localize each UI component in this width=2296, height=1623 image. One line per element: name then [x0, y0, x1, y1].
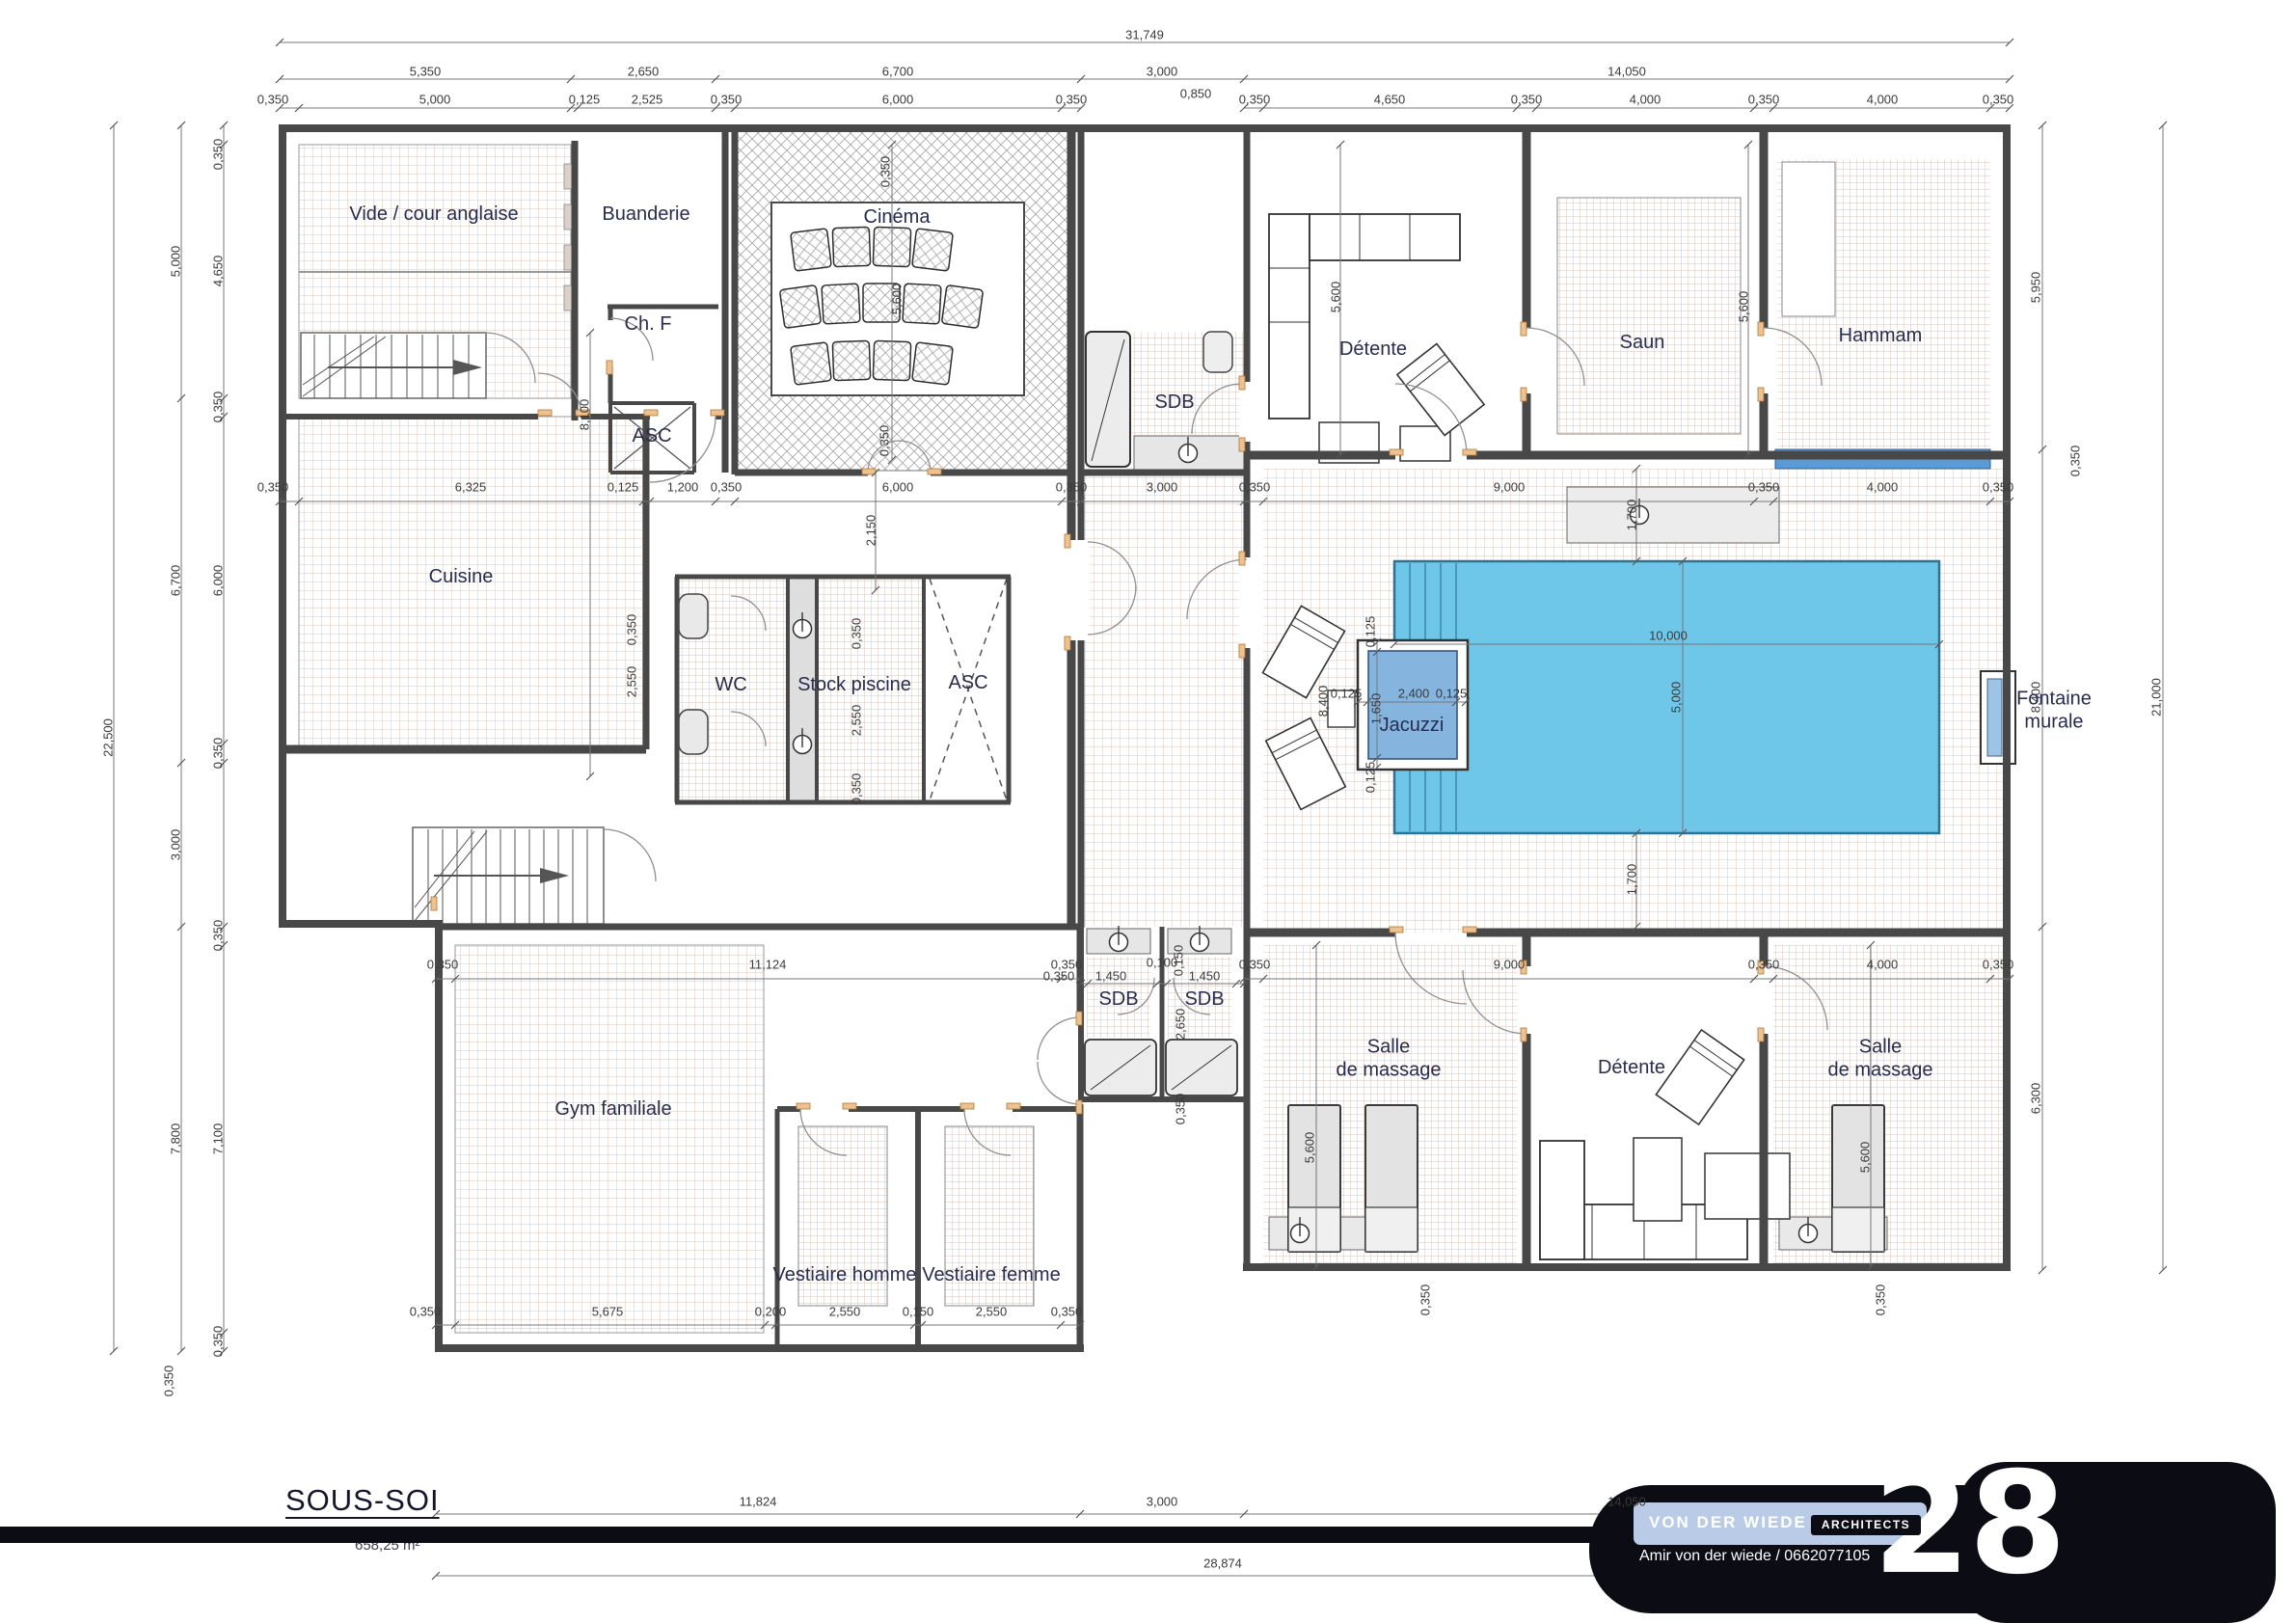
room-label-cuisine: Cuisine [429, 565, 494, 588]
dim-label: 2,150 [864, 515, 878, 547]
dim-label: 3,000 [1147, 480, 1178, 495]
dim-label: 4,000 [1867, 480, 1899, 495]
dim-label: 0,350 [1051, 1305, 1083, 1319]
dim-label: 3,000 [169, 829, 183, 861]
dim-label: 1,200 [667, 480, 699, 495]
dim-label: 0,350 [625, 614, 639, 646]
dim-label: 0,350 [1239, 958, 1271, 972]
dim-label: 0,350 [1983, 93, 2014, 107]
room-label-cinema: Cinéma [864, 205, 931, 229]
dim-label: 6,700 [882, 65, 914, 79]
dim-label: 5,675 [592, 1305, 624, 1319]
dim-label: 2,650 [1174, 1009, 1188, 1041]
dim-label: 0,350 [711, 93, 743, 107]
dim-label: 0,350 [1983, 958, 2014, 972]
dim-label: 0,350 [211, 392, 226, 423]
room-label-gym-familiale: Gym familiale [554, 1097, 671, 1121]
dim-label: 0,350 [410, 1305, 442, 1319]
room-label-vestiaire-femme: Vestiaire femme [922, 1263, 1060, 1286]
dim-label: 14,050 [1607, 65, 1646, 79]
dim-label: 0,350 [257, 93, 289, 107]
dim-label: 0,350 [850, 773, 864, 805]
room-label-sdb-left: SDB [1098, 987, 1138, 1011]
dim-label: 2,550 [850, 705, 864, 737]
dim-label: 5,350 [410, 65, 442, 79]
dim-label: 0,350 [2068, 446, 2083, 477]
dim-label: 6,300 [2029, 1083, 2043, 1115]
dim-label: 6,000 [211, 565, 226, 597]
dim-label: 2,525 [632, 93, 663, 107]
dim-label: 0,350 [1418, 1285, 1433, 1316]
dim-label: 1,700 [1625, 864, 1639, 896]
room-label-sdb-right: SDB [1184, 987, 1224, 1011]
dim-label: 0,350 [162, 1366, 176, 1397]
dim-label: 0,350 [1056, 93, 1088, 107]
dim-label: 0,350 [1239, 480, 1271, 495]
dim-label: 0,350 [1748, 480, 1780, 495]
dim-label: 0,350 [1511, 93, 1543, 107]
dim-label: 5,600 [1303, 1132, 1317, 1164]
dim-label: 5,000 [169, 246, 183, 278]
dim-label: 0,350 [211, 139, 226, 171]
dim-label: 0,350 [1748, 93, 1780, 107]
dim-label: 4,000 [1630, 93, 1661, 107]
dim-label: 0,350 [878, 156, 893, 188]
dim-label: 7,100 [211, 1123, 226, 1155]
dim-label: 22,500 [101, 718, 116, 757]
room-label-vestiaire-homme: Vestiaire homme [773, 1263, 917, 1286]
dim-label: 0,350 [711, 480, 743, 495]
dim-label: 0,350 [878, 425, 892, 457]
dim-label: 31,749 [1125, 28, 1164, 42]
dim-label: 0,350 [211, 1326, 226, 1358]
dim-label: 4,650 [1374, 93, 1406, 107]
dim-label: 1,450 [1095, 969, 1127, 984]
room-label-hammam: Hammam [1839, 324, 1923, 347]
logo-brand: VON DER WIEDE [1649, 1513, 1807, 1532]
dim-label: 5,600 [890, 284, 905, 315]
dim-label: 6,000 [882, 93, 914, 107]
dim-label: 5,000 [1669, 682, 1684, 714]
room-label-salle-massage-right: Salle de massage [1828, 1036, 1933, 1083]
dim-label: 10,000 [1649, 629, 1688, 643]
dim-label: 2,550 [625, 666, 639, 698]
plan-title: SOUS-SOI [285, 1483, 440, 1518]
dim-label: 0,350 [1043, 969, 1075, 984]
dim-label: 14,050 [1607, 1495, 1646, 1509]
dim-label: 0,125 [1331, 687, 1363, 701]
floor-plan-drawing [0, 0, 2296, 1623]
dim-label: 9,000 [1494, 958, 1526, 972]
dim-label: 0,350 [1056, 480, 1088, 495]
dim-label: 4,000 [1867, 93, 1899, 107]
dim-label: 21,000 [2149, 678, 2164, 717]
dim-label: 5,600 [1737, 291, 1751, 323]
dim-label: 0,125 [569, 93, 601, 107]
dim-label: 0,200 [755, 1305, 787, 1319]
dim-label: 5,000 [419, 93, 451, 107]
dim-label: 0,350 [1748, 958, 1780, 972]
dim-label: 11,124 [749, 958, 787, 972]
dim-label: 2,400 [1398, 687, 1430, 701]
dim-label: 0,850 [1180, 87, 1212, 101]
dim-label: 0,350 [427, 958, 459, 972]
dim-label: 2,550 [976, 1305, 1008, 1319]
room-label-asc-lower: ASC [948, 671, 987, 694]
logo-contact: Amir von der wiede / 0662077105 [1639, 1548, 1870, 1565]
room-label-jacuzzi: Jacuzzi [1380, 714, 1445, 737]
dim-label: 0,125 [1364, 762, 1378, 794]
dim-label: 3,000 [1147, 1495, 1178, 1509]
dim-label: 4,650 [211, 256, 226, 287]
dim-label: 0,150 [903, 1305, 934, 1319]
dim-label: 2,650 [628, 65, 660, 79]
room-label-stock-piscine: Stock piscine [797, 673, 911, 696]
dim-label: 9,000 [1494, 480, 1526, 495]
room-label-detente-lower: Détente [1598, 1056, 1665, 1079]
dim-label: 0,350 [257, 480, 289, 495]
floor-plan-page: 31,7495,3502,6506,7003,00014,0500,3505,0… [0, 0, 2296, 1623]
room-label-sdb-upper: SDB [1154, 391, 1194, 414]
dim-label: 0,350 [1239, 93, 1271, 107]
dim-label: 6,000 [882, 480, 914, 495]
dim-label: 5,600 [1858, 1142, 1873, 1174]
room-label-asc-upper: ASC [632, 424, 671, 447]
dim-label: 4,000 [1867, 958, 1899, 972]
room-label-salle-massage-left: Salle de massage [1337, 1036, 1442, 1083]
room-label-buanderie: Buanderie [602, 203, 689, 226]
dim-label: 0,350 [211, 738, 226, 770]
dim-label: 28,874 [1203, 1556, 1242, 1571]
dim-label: 6,700 [169, 565, 183, 597]
dim-label: 1,450 [1189, 969, 1221, 984]
dim-label: 2,550 [829, 1305, 861, 1319]
room-label-chaufferie: Ch. F [625, 312, 672, 336]
dim-label: 0,150 [1172, 945, 1186, 977]
room-label-saun: Saun [1620, 331, 1665, 354]
room-label-fontaine-murale: Fontaine murale [2016, 688, 2092, 735]
dim-label: 3,000 [1147, 65, 1178, 79]
dim-label: 6,325 [455, 480, 487, 495]
dim-label: 11,824 [740, 1495, 777, 1509]
dim-label: 0,125 [1436, 687, 1468, 701]
dim-label: 5,950 [2029, 272, 2043, 304]
dim-label: 0,350 [1983, 480, 2014, 495]
dim-label: 8,400 [1316, 686, 1331, 717]
dim-label: 0,350 [850, 618, 864, 650]
footer-bar [0, 1527, 1612, 1543]
dim-label: 0,350 [211, 920, 226, 952]
dim-label: 0,125 [608, 480, 639, 495]
dim-label: 8,100 [578, 399, 592, 431]
dim-label: 7,800 [169, 1123, 183, 1155]
logo-brand-suffix: ARCHITECTS [1811, 1515, 1921, 1535]
dim-label: 0,125 [1364, 616, 1378, 648]
room-label-detente-upper: Détente [1339, 338, 1407, 361]
dim-label: 1,700 [1625, 500, 1639, 531]
dim-label: 5,600 [1329, 282, 1343, 313]
room-label-wc: WC [715, 673, 746, 696]
dim-label: 0,350 [1174, 1094, 1188, 1125]
room-label-vide-cour-anglaise: Vide / cour anglaise [349, 203, 518, 226]
dim-label: 0,350 [1874, 1285, 1888, 1316]
